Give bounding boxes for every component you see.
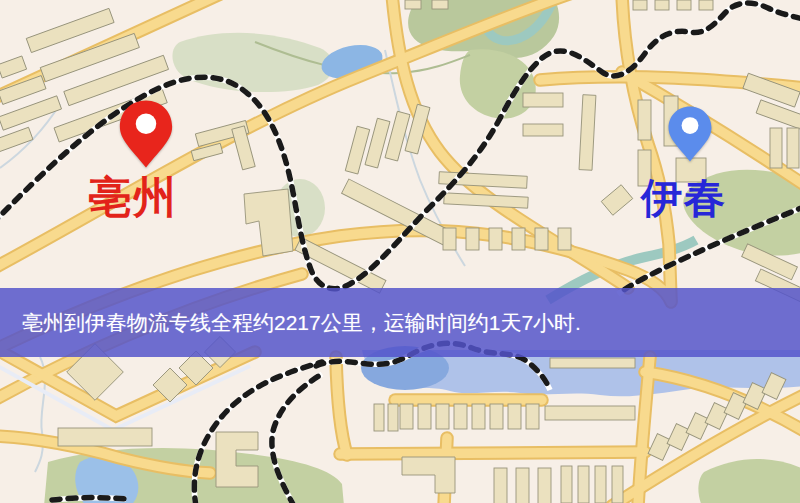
route-info-text: 亳州到伊春物流专线全程约2217公里，运输时间约1天7小时. <box>0 309 581 337</box>
origin-pin-icon <box>118 98 174 170</box>
destination-city-label: 伊春 <box>641 178 727 219</box>
route-info-banner: 亳州到伊春物流专线全程约2217公里，运输时间约1天7小时. <box>0 288 800 357</box>
origin-city-label: 亳州 <box>88 176 178 219</box>
origin-pin-hole <box>136 113 157 134</box>
map: 亳州 伊春 亳州到伊春物流专线全程约2217公里，运输时间约1天7小时. <box>0 0 800 503</box>
destination-pin-icon <box>667 103 713 165</box>
destination-pin-hole <box>682 117 699 134</box>
map-background <box>0 0 800 503</box>
